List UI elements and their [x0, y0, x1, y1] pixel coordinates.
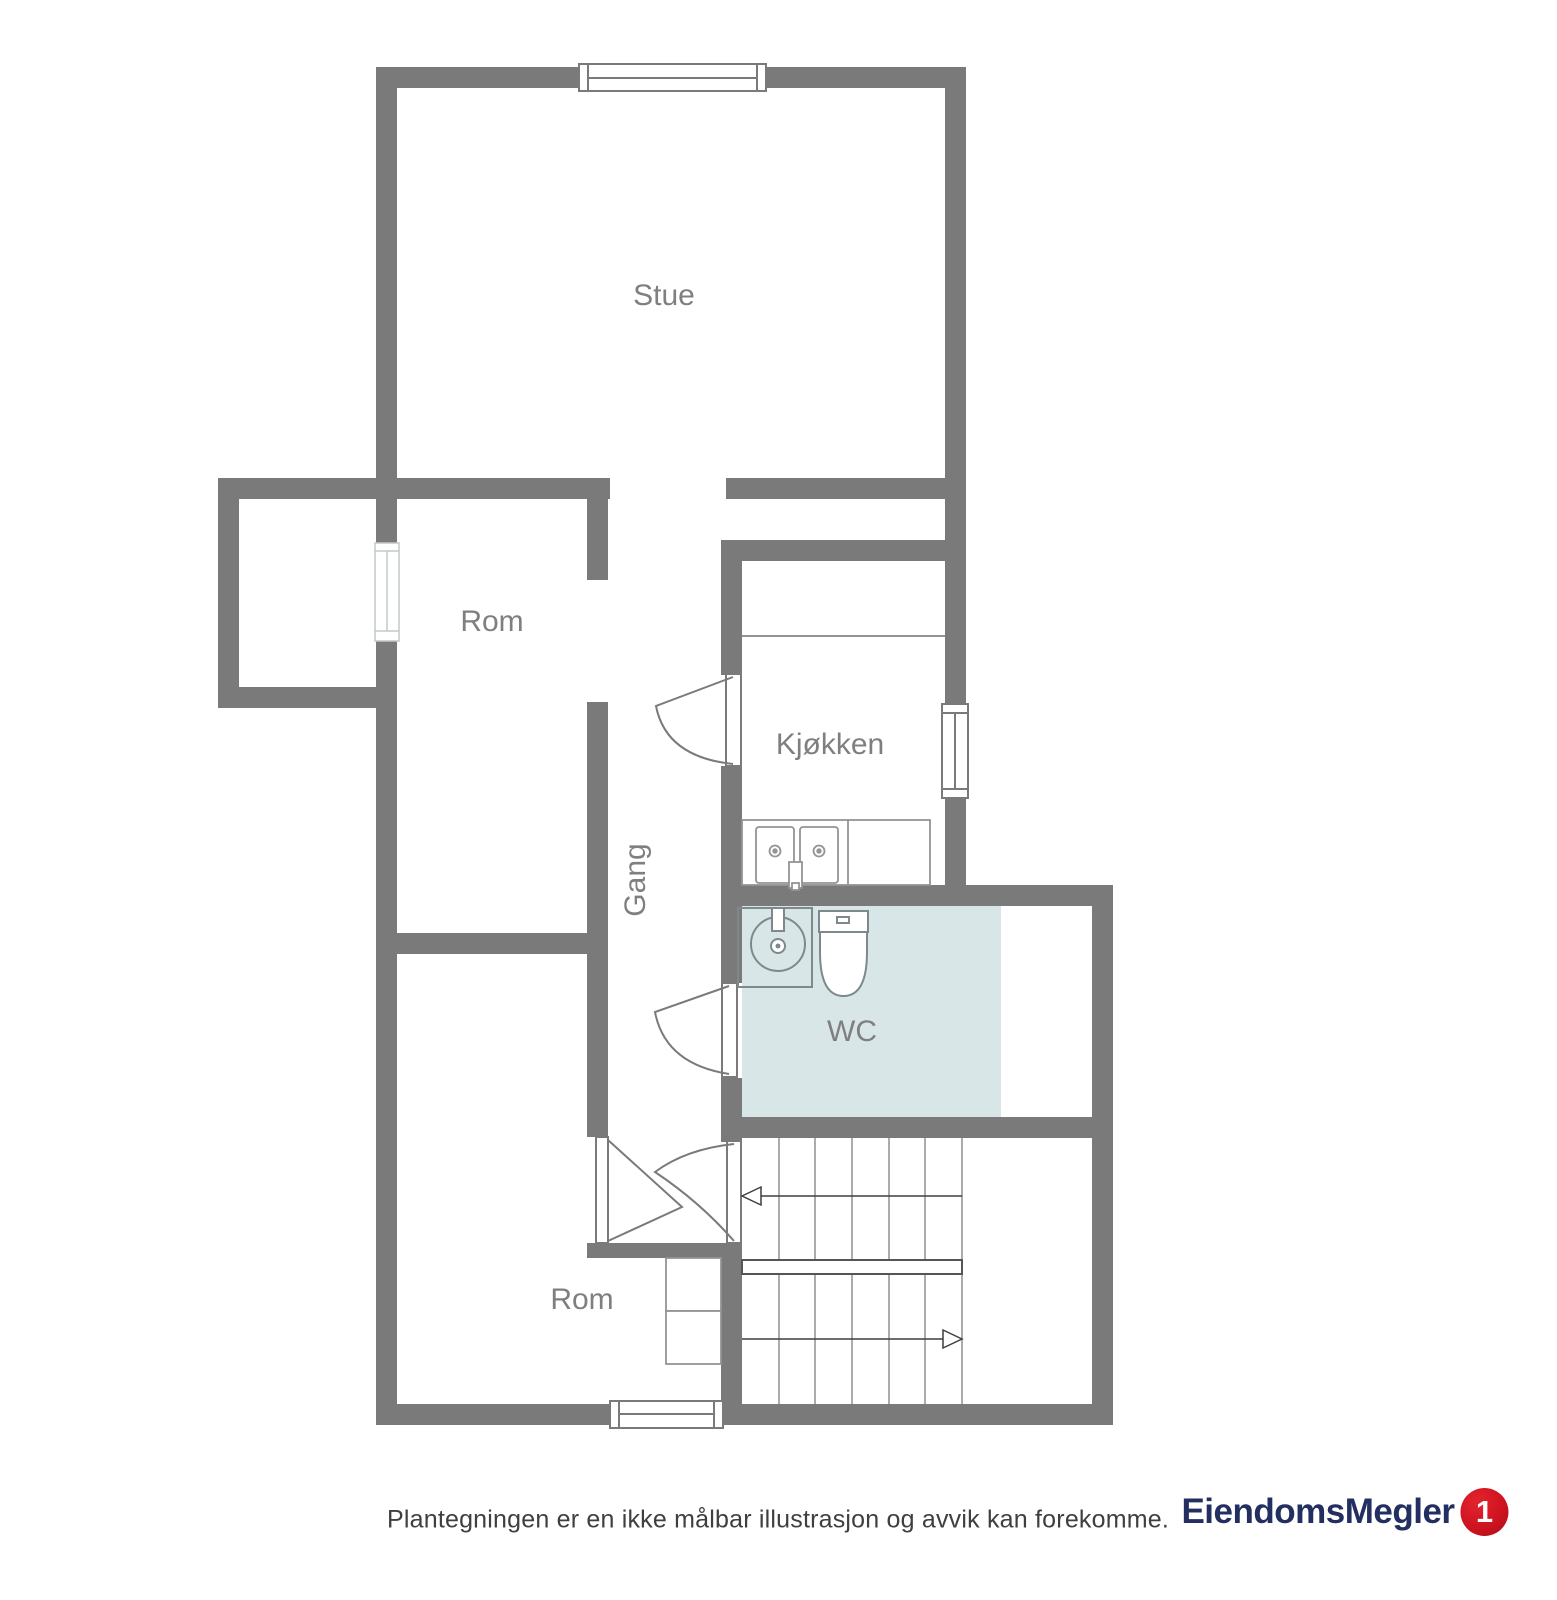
wall-segment: [1092, 885, 1113, 1425]
wall-segment: [945, 67, 966, 705]
window-kjokken: [942, 704, 968, 798]
window-annex: [375, 543, 399, 641]
wc-floor: [742, 906, 1001, 1117]
room-label-stue: Stue: [633, 281, 695, 311]
room-label-rom-lower: Rom: [550, 1285, 613, 1315]
wall-segment: [766, 67, 966, 88]
wall-segment: [218, 478, 239, 708]
kitchen-fixtures: [742, 636, 945, 890]
stair-landing: [742, 1260, 962, 1274]
wall-segment: [587, 478, 608, 580]
disclaimer-text: Plantegningen er en ikke målbar illustra…: [387, 1506, 1169, 1535]
closet: [666, 1258, 721, 1364]
window-rom: [610, 1401, 723, 1428]
wall-segment: [376, 499, 397, 545]
wall-segment: [376, 1404, 610, 1425]
wall-segment: [721, 1243, 742, 1425]
wall-segment: [218, 478, 610, 499]
staircase: [742, 1138, 962, 1404]
wall-segment: [726, 478, 966, 499]
room-label-rom-upper: Rom: [460, 607, 523, 637]
wc-toilet-icon: [819, 911, 868, 996]
floorplan-drawing: [0, 0, 1557, 1600]
logo-badge-1-icon: 1: [1461, 1488, 1509, 1536]
wall-segment: [218, 687, 397, 708]
room-label-kjokken: Kjøkken: [776, 730, 884, 760]
floorplan-page: Stue Rom Kjøkken Gang WC Rom Plantegning…: [0, 0, 1557, 1600]
wall-segment: [721, 1117, 1092, 1138]
door-stairs: [655, 1141, 741, 1243]
logo-brand-text: EiendomsMegler: [1181, 1492, 1454, 1532]
wall-segment: [397, 933, 608, 954]
door-rom-lower: [596, 1137, 682, 1243]
window-stue: [579, 64, 766, 91]
wall-segment: [723, 1404, 1113, 1425]
wall-segment: [376, 67, 397, 499]
wall-segment: [721, 885, 1113, 906]
wall-segment: [376, 67, 579, 88]
doors: [596, 674, 741, 1243]
door-kjokken: [656, 674, 741, 766]
room-label-wc: WC: [827, 1017, 877, 1047]
wall-segment: [945, 797, 966, 890]
walls: [218, 67, 1113, 1425]
door-wc: [655, 983, 737, 1077]
eiendomsmegler-logo: EiendomsMegler 1: [1181, 1488, 1508, 1536]
wall-segment: [376, 639, 397, 1425]
wall-segment: [721, 540, 966, 561]
wall-segment: [587, 702, 608, 1137]
room-label-gang: Gang: [621, 843, 651, 916]
wall-segment: [587, 1243, 742, 1258]
